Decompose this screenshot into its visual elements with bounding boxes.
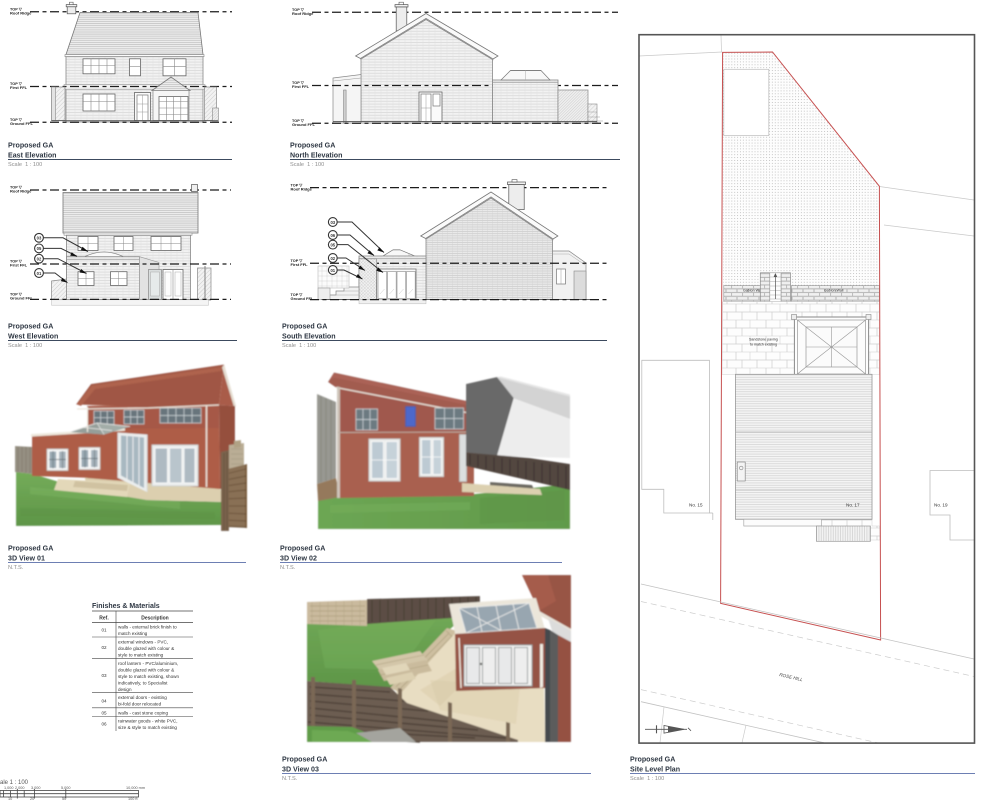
svg-text:bi-fold door relocated: bi-fold door relocated: [118, 702, 162, 707]
svg-text:06: 06: [101, 722, 107, 727]
svg-text:Roof Ridge: Roof Ridge: [292, 11, 314, 16]
svg-text:Ground FFL: Ground FFL: [10, 121, 33, 126]
svg-text:First FFL: First FFL: [10, 263, 28, 268]
svg-text:First FFL: First FFL: [291, 262, 309, 267]
svg-text:No. 19: No. 19: [934, 503, 948, 508]
svg-text:South Elevation: South Elevation: [282, 333, 336, 341]
svg-text:Roof Ridge: Roof Ridge: [10, 189, 32, 194]
svg-text:Proposed GA: Proposed GA: [282, 756, 327, 764]
svg-text:Sandstone paving: Sandstone paving: [749, 338, 778, 342]
svg-text:Scale 1 : 100: Scale 1 : 100: [8, 343, 42, 349]
svg-text:02: 02: [101, 645, 107, 650]
svg-text:Proposed GA: Proposed GA: [290, 142, 335, 150]
svg-text:Site Level Plan: Site Level Plan: [630, 766, 680, 774]
svg-text:external windows - PVC,: external windows - PVC,: [118, 640, 168, 645]
svg-text:double glazed with colour &: double glazed with colour &: [118, 646, 174, 651]
svg-text:Roof Ridge: Roof Ridge: [10, 11, 32, 16]
svg-text:Scale 1 : 100: Scale 1 : 100: [290, 162, 324, 168]
svg-text:to match existing: to match existing: [750, 343, 777, 347]
svg-text:size & style to match existing: size & style to match existing: [118, 725, 177, 730]
svg-text:rainwater goods - white PVC,: rainwater goods - white PVC,: [118, 719, 178, 724]
svg-text:Ground FFL: Ground FFL: [10, 296, 33, 301]
svg-text:N.T.S.: N.T.S.: [280, 565, 296, 571]
svg-text:01: 01: [330, 268, 335, 273]
svg-text:05: 05: [101, 710, 107, 715]
svg-text:02: 02: [37, 257, 42, 262]
svg-text:N.T.S.: N.T.S.: [8, 565, 24, 571]
svg-text:Proposed GA: Proposed GA: [630, 756, 675, 764]
svg-text:3,000: 3,000: [31, 786, 41, 790]
svg-text:Scale 1 : 100: Scale 1 : 100: [282, 343, 316, 349]
svg-text:Proposed GA: Proposed GA: [280, 545, 325, 553]
svg-text:03: 03: [330, 220, 335, 225]
svg-text:03: 03: [37, 236, 42, 241]
svg-text:No. 17: No. 17: [846, 503, 860, 508]
svg-text:Ref.: Ref.: [99, 616, 109, 622]
svg-text:Proposed GA: Proposed GA: [8, 323, 53, 331]
svg-text:Scale 1 : 100: Scale 1 : 100: [630, 776, 664, 782]
svg-text:style to match existing: style to match existing: [118, 653, 164, 658]
svg-text:external doors - existing: external doors - existing: [118, 695, 167, 700]
svg-text:roof lantern - PVC/aluminium,: roof lantern - PVC/aluminium,: [118, 661, 178, 666]
svg-text:Description: Description: [141, 616, 169, 622]
svg-text:04: 04: [101, 699, 107, 704]
svg-text:Proposed GA: Proposed GA: [8, 142, 53, 150]
svg-text:Ground FFL: Ground FFL: [291, 296, 314, 301]
svg-text:double glazed with colour &: double glazed with colour &: [118, 667, 174, 672]
svg-text:East Elevation: East Elevation: [8, 152, 57, 160]
svg-text:Gabion Wall: Gabion Wall: [824, 289, 844, 293]
svg-text:05: 05: [330, 242, 335, 247]
svg-text:West Elevation: West Elevation: [8, 333, 58, 341]
svg-text:Gabion Wall: Gabion Wall: [743, 289, 763, 293]
svg-text:North Elevation: North Elevation: [290, 152, 342, 160]
svg-text:1,000: 1,000: [4, 786, 14, 790]
svg-text:walls - cast stone coping: walls - cast stone coping: [118, 710, 168, 715]
svg-text:06: 06: [330, 233, 335, 238]
svg-text:First FFL: First FFL: [10, 85, 28, 90]
svg-text:Proposed GA: Proposed GA: [8, 545, 53, 553]
svg-text:01: 01: [37, 271, 42, 276]
svg-text:design: design: [118, 687, 132, 692]
svg-text:First FFL: First FFL: [292, 84, 310, 89]
svg-text:match existing: match existing: [118, 631, 148, 636]
svg-text:Finishes & Materials: Finishes & Materials: [92, 603, 160, 610]
svg-text:01: 01: [101, 628, 107, 633]
svg-text:style to match existing, shown: style to match existing, shown: [118, 674, 179, 679]
svg-text:No. 15: No. 15: [689, 503, 703, 508]
svg-text:Ground FFL: Ground FFL: [292, 122, 315, 127]
svg-text:walls - external brick finish: walls - external brick finish to: [118, 625, 177, 630]
svg-text:N.T.S.: N.T.S.: [282, 776, 298, 782]
svg-text:3D View 02: 3D View 02: [280, 555, 317, 563]
svg-text:3D View 01: 3D View 01: [8, 555, 45, 563]
svg-text:3D View 03: 3D View 03: [282, 766, 319, 774]
svg-text:02: 02: [330, 256, 335, 261]
svg-text:03: 03: [101, 673, 107, 678]
svg-text:Proposed GA: Proposed GA: [282, 323, 327, 331]
svg-text:Scale 1 : 100: Scale 1 : 100: [8, 162, 42, 168]
svg-text:indicatively, to Specialist: indicatively, to Specialist: [118, 680, 168, 685]
svg-text:Roof Ridge: Roof Ridge: [291, 186, 313, 191]
svg-text:05: 05: [37, 246, 42, 251]
svg-text:10,000 mm: 10,000 mm: [126, 786, 145, 790]
svg-text:2,000: 2,000: [15, 786, 25, 790]
